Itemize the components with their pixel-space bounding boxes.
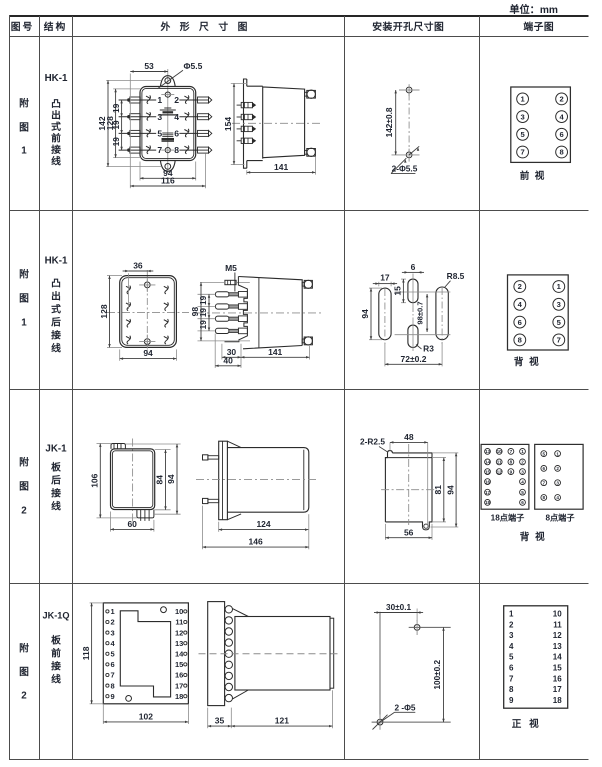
svg-text:M5: M5 [225,263,237,273]
svg-text:40: 40 [223,356,233,366]
svg-text:6: 6 [411,262,416,272]
svg-text:视: 视 [535,531,545,543]
svg-text:2: 2 [521,460,524,465]
svg-text:1: 1 [520,95,525,104]
svg-text:5: 5 [509,653,514,662]
svg-text:14: 14 [485,460,491,465]
svg-text:3: 3 [520,112,524,121]
svg-text:8: 8 [559,148,563,157]
svg-text:正: 正 [512,719,522,730]
svg-text:3: 3 [157,112,162,122]
svg-text:2-R2.5: 2-R2.5 [360,437,385,447]
svg-text:Φ5.5: Φ5.5 [184,61,203,71]
svg-text:154: 154 [223,117,233,131]
svg-text:19: 19 [112,137,121,147]
svg-text:2: 2 [111,618,115,627]
svg-text:端子图: 端子图 [523,20,554,33]
svg-text:后: 后 [51,474,61,487]
svg-text:141: 141 [268,347,282,357]
svg-text:106: 106 [90,473,100,487]
svg-text:6: 6 [559,130,563,139]
svg-text:11: 11 [175,618,183,627]
svg-text:2: 2 [21,506,27,517]
svg-text:94: 94 [445,485,455,495]
svg-text:线: 线 [51,342,61,355]
svg-text:线: 线 [51,500,61,513]
svg-text:19: 19 [199,320,208,330]
svg-text:4: 4 [518,300,523,309]
svg-text:9: 9 [509,696,514,705]
svg-text:图: 图 [19,666,29,678]
svg-text:凸: 凸 [51,98,61,110]
svg-text:35: 35 [215,716,225,726]
svg-text:17: 17 [380,273,390,283]
svg-text:4: 4 [111,639,116,648]
svg-text:图: 图 [19,481,29,493]
svg-text:图号: 图号 [11,21,35,33]
svg-text:4: 4 [509,642,514,651]
svg-text:2: 2 [556,466,559,471]
svg-text:19: 19 [199,295,208,305]
svg-text:附: 附 [19,268,29,281]
svg-text:图: 图 [19,122,29,134]
svg-text:HK-1: HK-1 [45,256,68,267]
svg-text:1: 1 [111,607,115,616]
svg-text:19: 19 [199,308,208,318]
svg-text:R3: R3 [423,344,434,354]
svg-text:板: 板 [51,461,61,474]
svg-text:2: 2 [559,95,563,104]
svg-text:48: 48 [404,432,414,442]
svg-text:98±0.7: 98±0.7 [416,301,425,324]
svg-text:128: 128 [99,304,109,318]
svg-text:式: 式 [51,120,61,133]
svg-text:16: 16 [553,674,562,683]
svg-text:1: 1 [509,610,514,619]
svg-text:出: 出 [51,109,61,122]
svg-text:前: 前 [51,647,61,660]
svg-text:1: 1 [557,282,562,291]
svg-text:式: 式 [51,303,61,316]
svg-text:15: 15 [175,660,183,669]
svg-text:14: 14 [175,650,184,659]
svg-text:7: 7 [510,449,513,454]
svg-text:6: 6 [174,129,179,139]
svg-text:接: 接 [51,329,61,342]
svg-text:141: 141 [274,162,288,172]
svg-text:凸: 凸 [51,278,61,290]
svg-text:6: 6 [543,466,546,471]
svg-text:前: 前 [51,132,61,145]
svg-text:30±0.1: 30±0.1 [386,603,411,612]
svg-text:2 -Φ5: 2 -Φ5 [394,702,415,712]
svg-text:4: 4 [521,479,524,484]
svg-text:视: 视 [529,718,539,730]
svg-text:线: 线 [51,673,61,686]
svg-text:1: 1 [21,318,27,329]
svg-text:56: 56 [404,527,414,537]
svg-text:84: 84 [155,475,165,485]
svg-text:13: 13 [553,642,562,651]
svg-text:6: 6 [521,500,524,505]
svg-text:1: 1 [521,449,524,454]
svg-text:19: 19 [112,103,121,113]
svg-text:16: 16 [485,479,491,484]
svg-text:结构: 结构 [44,20,68,33]
svg-text:14: 14 [553,653,562,662]
svg-text:3: 3 [111,628,115,637]
svg-text:接: 接 [51,143,61,156]
svg-text:2: 2 [518,282,522,291]
svg-text:8: 8 [510,460,513,465]
svg-text:100±0.2: 100±0.2 [433,660,442,690]
svg-text:8: 8 [518,336,522,345]
svg-text:3: 3 [556,480,559,485]
svg-text:18点端子: 18点端子 [491,513,525,523]
svg-text:17: 17 [175,681,183,690]
svg-text:18: 18 [485,500,491,505]
svg-text:12: 12 [497,469,503,474]
svg-text:18: 18 [553,696,562,705]
svg-text:72±0.2: 72±0.2 [401,354,427,364]
svg-text:15: 15 [553,664,562,673]
svg-text:6: 6 [111,660,115,669]
svg-text:18: 18 [175,692,183,701]
svg-text:安装开孔尺寸图: 安装开孔尺寸图 [372,20,444,33]
svg-text:接: 接 [51,660,61,673]
svg-text:背: 背 [514,356,524,368]
svg-text:7: 7 [520,148,524,157]
svg-text:接: 接 [51,487,61,500]
svg-text:102: 102 [139,712,153,722]
svg-text:15: 15 [485,469,491,474]
svg-text:11: 11 [553,620,562,629]
svg-text:10: 10 [497,449,503,454]
svg-text:7: 7 [509,674,514,683]
svg-text:4: 4 [556,495,559,500]
svg-text:12: 12 [175,628,183,637]
svg-text:94: 94 [360,309,370,319]
svg-text:R8.5: R8.5 [447,271,465,281]
svg-text:121: 121 [275,716,289,726]
svg-text:19: 19 [112,120,121,130]
svg-text:36: 36 [133,261,143,271]
svg-text:15: 15 [393,286,403,296]
svg-text:附: 附 [19,97,29,110]
svg-text:7: 7 [543,480,546,485]
svg-text:附: 附 [19,642,29,655]
svg-text:附: 附 [19,456,29,469]
svg-text:17: 17 [553,685,562,694]
svg-text:单位：mm: 单位：mm [509,3,558,16]
svg-text:3: 3 [557,300,561,309]
svg-text:前: 前 [520,170,530,182]
svg-text:JK-1: JK-1 [45,444,67,455]
svg-text:7: 7 [557,336,561,345]
svg-text:146: 146 [249,537,263,547]
svg-text:5: 5 [521,490,524,495]
svg-text:16: 16 [175,671,183,680]
svg-text:17: 17 [485,490,491,495]
svg-text:53: 53 [144,61,154,71]
svg-text:118: 118 [81,646,91,660]
svg-text:2: 2 [174,95,179,105]
svg-text:背: 背 [520,531,530,543]
svg-text:8: 8 [543,495,546,500]
svg-text:8点端子: 8点端子 [545,513,574,523]
svg-text:5: 5 [520,130,525,139]
svg-text:12: 12 [553,631,562,640]
svg-text:8: 8 [509,685,514,694]
svg-text:124: 124 [256,519,270,529]
svg-text:7: 7 [157,145,162,155]
svg-text:116: 116 [161,176,175,186]
svg-text:视: 视 [529,356,539,368]
svg-text:10: 10 [553,610,562,619]
svg-text:142±0.8: 142±0.8 [384,107,394,137]
svg-text:图: 图 [19,293,29,305]
svg-text:13: 13 [175,639,183,648]
svg-text:9: 9 [510,469,513,474]
svg-text:6: 6 [518,318,522,327]
svg-text:6: 6 [509,664,514,673]
svg-text:9: 9 [111,692,115,701]
svg-text:3: 3 [509,631,514,640]
svg-text:60: 60 [127,519,137,529]
svg-text:3: 3 [521,469,524,474]
svg-text:94: 94 [143,348,153,358]
svg-text:4: 4 [559,112,564,121]
svg-text:5: 5 [557,318,562,327]
svg-text:4: 4 [174,112,179,122]
svg-text:81: 81 [433,485,443,495]
svg-text:1: 1 [556,451,559,456]
svg-text:8: 8 [174,145,179,155]
svg-text:视: 视 [535,170,545,182]
svg-text:2-Φ5.5: 2-Φ5.5 [392,163,418,173]
svg-text:HK-1: HK-1 [45,73,68,84]
svg-text:5: 5 [111,650,115,659]
svg-text:2: 2 [21,691,27,702]
svg-text:2: 2 [509,620,514,629]
svg-text:10: 10 [175,607,183,616]
svg-text:JK-1Q: JK-1Q [42,611,69,621]
svg-text:1: 1 [21,146,27,157]
svg-text:5: 5 [157,129,162,139]
svg-text:线: 线 [51,155,61,168]
svg-text:外形尺寸图: 外形尺寸图 [159,20,256,33]
svg-text:8: 8 [111,681,115,690]
svg-text:板: 板 [51,634,61,647]
svg-text:后: 后 [51,316,61,329]
svg-text:5: 5 [543,451,546,456]
svg-text:11: 11 [497,460,502,465]
svg-text:13: 13 [485,449,491,454]
svg-text:1: 1 [157,95,162,105]
svg-text:94: 94 [166,474,176,484]
svg-text:7: 7 [111,671,115,680]
svg-text:出: 出 [51,290,61,303]
